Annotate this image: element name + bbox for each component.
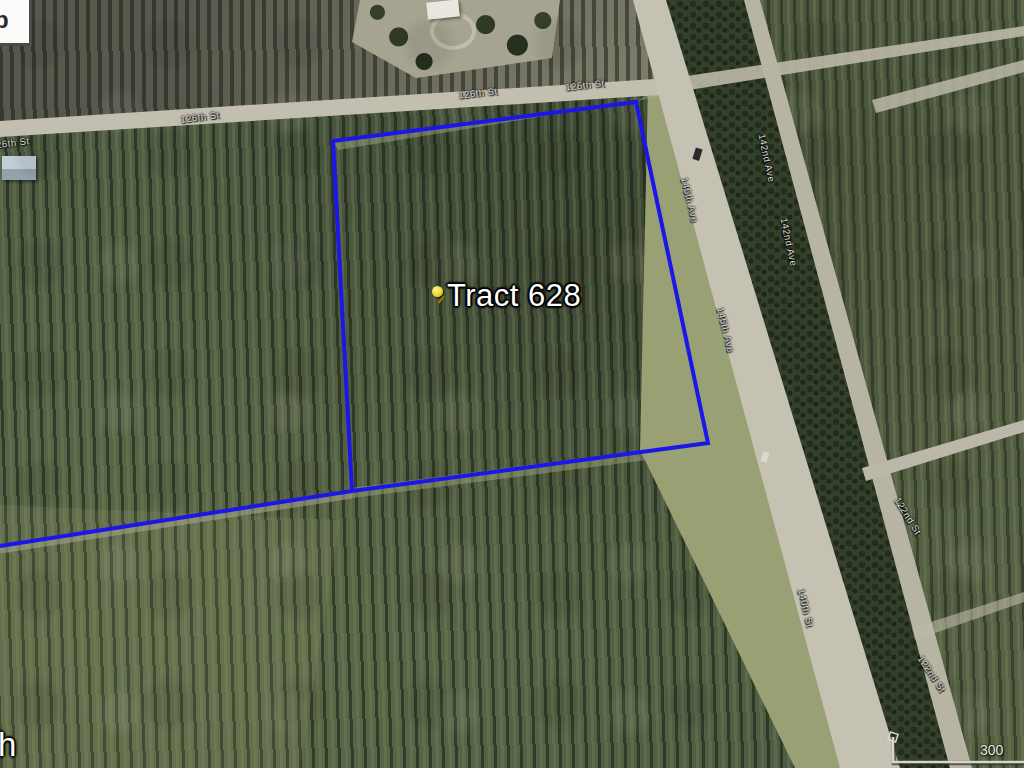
clipped-placemark-label: h — [0, 726, 16, 764]
pushpin-icon[interactable] — [432, 286, 443, 297]
scale-bar-distance: 300 — [980, 742, 1003, 758]
map-control-button[interactable]: p — [0, 0, 32, 46]
satellite-map[interactable]: 126th St 126th St 126th St 126th St 145t… — [0, 0, 1024, 768]
terrain-mottle — [0, 0, 1024, 768]
tract-placemark-label: Tract 628 — [447, 278, 581, 314]
